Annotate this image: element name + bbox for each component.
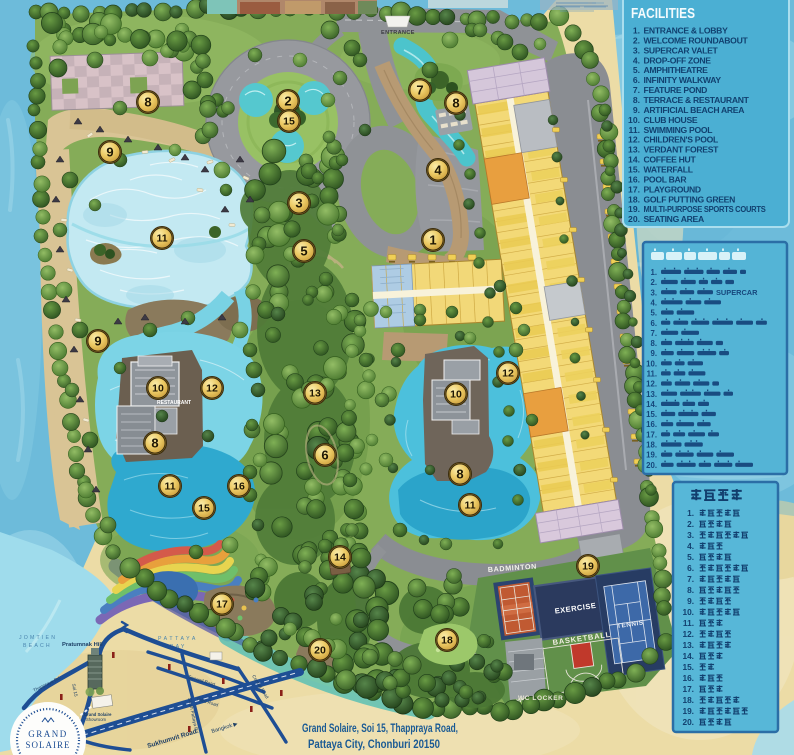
svg-text:8: 8	[144, 95, 151, 110]
svg-text:6.: 6.	[633, 75, 640, 85]
svg-text:Pattaya City, Chonburi 20150: Pattaya City, Chonburi 20150	[308, 737, 440, 751]
svg-text:1.: 1.	[650, 268, 657, 277]
svg-text:1: 1	[429, 233, 436, 248]
svg-text:7: 7	[416, 83, 423, 98]
svg-text:11: 11	[464, 500, 475, 512]
svg-text:10.: 10.	[628, 115, 640, 125]
svg-text:CHILDREN'S POOL: CHILDREN'S POOL	[644, 135, 718, 145]
svg-text:9.: 9.	[650, 349, 657, 358]
svg-text:7.: 7.	[650, 329, 657, 338]
svg-text:COFFEE HUT: COFFEE HUT	[644, 155, 697, 165]
svg-text:11: 11	[164, 481, 175, 493]
svg-text:16.: 16.	[628, 174, 640, 184]
svg-text:PLAYGROUND: PLAYGROUND	[644, 184, 701, 194]
svg-text:8.: 8.	[687, 585, 694, 595]
svg-text:16.: 16.	[646, 420, 657, 429]
svg-text:8: 8	[452, 96, 459, 111]
svg-text:2: 2	[284, 94, 291, 109]
svg-text:12: 12	[502, 368, 514, 380]
svg-text:CLUB HOUSE: CLUB HOUSE	[644, 115, 698, 125]
svg-text:4.: 4.	[650, 298, 657, 307]
svg-text:16.: 16.	[682, 673, 694, 683]
svg-text:2.: 2.	[687, 519, 694, 529]
svg-text:11.: 11.	[647, 370, 657, 379]
svg-text:20.: 20.	[628, 214, 640, 224]
svg-text:SEATING AREA: SEATING AREA	[644, 214, 704, 224]
svg-text:8: 8	[151, 436, 158, 451]
svg-text:11.: 11.	[683, 618, 694, 628]
svg-text:13.: 13.	[646, 390, 657, 399]
svg-text:9: 9	[94, 334, 101, 349]
svg-text:10.: 10.	[682, 607, 694, 617]
svg-text:11: 11	[156, 233, 167, 245]
svg-text:6.: 6.	[650, 319, 657, 328]
svg-text:18.: 18.	[628, 194, 640, 204]
svg-text:9.: 9.	[687, 596, 694, 606]
svg-text:ENTRANCE & LOBBY: ENTRANCE & LOBBY	[644, 26, 729, 36]
svg-text:7.: 7.	[633, 85, 640, 95]
svg-text:WC LOCKER: WC LOCKER	[518, 695, 563, 702]
svg-text:3.: 3.	[633, 45, 640, 55]
svg-text:1.: 1.	[687, 508, 694, 518]
svg-text:4.: 4.	[633, 55, 640, 65]
svg-text:5: 5	[300, 244, 307, 259]
svg-text:12: 12	[206, 383, 218, 395]
svg-text:15: 15	[198, 503, 210, 515]
svg-text:SUPERCAR: SUPERCAR	[716, 288, 758, 297]
svg-text:GRAND: GRAND	[28, 729, 68, 739]
svg-text:MULTI-PURPOSE SPORTS COURTS: MULTI-PURPOSE SPORTS COURTS	[644, 204, 766, 214]
svg-text:12.: 12.	[682, 629, 694, 639]
svg-text:19.: 19.	[628, 204, 640, 214]
svg-text:13.: 13.	[628, 145, 640, 155]
svg-text:10: 10	[152, 383, 164, 395]
svg-text:5.: 5.	[633, 65, 640, 75]
svg-text:20.: 20.	[646, 461, 657, 470]
svg-text:17.: 17.	[646, 430, 657, 439]
svg-text:7.: 7.	[687, 574, 694, 584]
svg-text:13.: 13.	[682, 640, 694, 650]
svg-text:VERDANT FOREST: VERDANT FOREST	[644, 145, 720, 155]
svg-text:18: 18	[441, 635, 453, 647]
svg-text:WATERFALL: WATERFALL	[644, 165, 693, 175]
svg-text:PATTAYA: PATTAYA	[158, 636, 198, 642]
svg-text:18.: 18.	[646, 441, 657, 450]
svg-text:FEATURE POND: FEATURE POND	[644, 85, 708, 95]
svg-text:Showroom: Showroom	[86, 717, 107, 722]
svg-text:4.: 4.	[687, 541, 694, 551]
svg-text:POOL BAR: POOL BAR	[644, 174, 688, 184]
svg-text:19.: 19.	[682, 706, 694, 716]
svg-text:20: 20	[314, 645, 326, 657]
svg-text:TERRACE & RESTAURANT: TERRACE & RESTAURANT	[644, 95, 750, 105]
svg-text:GOLF PUTTING GREEN: GOLF PUTTING GREEN	[644, 194, 736, 204]
svg-text:4: 4	[434, 163, 442, 178]
svg-text:8: 8	[456, 467, 463, 482]
svg-text:DROP-OFF ZONE: DROP-OFF ZONE	[644, 55, 712, 65]
svg-text:9: 9	[106, 145, 113, 160]
svg-text:18.: 18.	[682, 695, 694, 705]
svg-text:12.: 12.	[628, 135, 640, 145]
svg-text:15.: 15.	[628, 165, 640, 175]
svg-text:6: 6	[321, 448, 328, 463]
svg-text:2.: 2.	[650, 278, 657, 287]
svg-text:AMPHITHEATRE: AMPHITHEATRE	[644, 65, 709, 75]
svg-text:13: 13	[309, 388, 321, 400]
svg-text:3: 3	[295, 196, 302, 211]
svg-text:JOMTIEN: JOMTIEN	[19, 635, 57, 641]
svg-text:10: 10	[450, 389, 462, 401]
svg-text:SUPERCAR VALET: SUPERCAR VALET	[644, 45, 719, 55]
svg-text:16: 16	[233, 481, 245, 493]
svg-text:ARTIFICIAL BEACH AREA: ARTIFICIAL BEACH AREA	[644, 105, 745, 115]
svg-text:14.: 14.	[628, 155, 640, 165]
svg-text:SWIMMING POOL: SWIMMING POOL	[644, 125, 713, 135]
svg-text:5.: 5.	[687, 552, 694, 562]
svg-text:SOLAIRE: SOLAIRE	[26, 740, 71, 750]
svg-text:12.: 12.	[646, 380, 657, 389]
svg-text:19: 19	[582, 561, 594, 573]
svg-text:17.: 17.	[628, 184, 640, 194]
svg-text:INFINITY WALKWAY: INFINITY WALKWAY	[644, 75, 722, 85]
svg-text:15.: 15.	[682, 662, 694, 672]
svg-text:3.: 3.	[687, 530, 694, 540]
svg-text:9.: 9.	[633, 105, 640, 115]
svg-text:Grand Solaire, Soi 15, Thappra: Grand Solaire, Soi 15, Thappraya Road,	[302, 721, 458, 735]
svg-text:FACILITIES: FACILITIES	[631, 5, 695, 22]
svg-text:ENTRANCE: ENTRANCE	[381, 30, 415, 36]
svg-text:BEACH: BEACH	[23, 643, 52, 649]
svg-text:19.: 19.	[646, 451, 657, 460]
svg-text:17: 17	[216, 599, 228, 611]
svg-text:20.: 20.	[682, 717, 694, 727]
svg-text:17.: 17.	[682, 684, 694, 694]
svg-text:5.: 5.	[650, 309, 657, 318]
svg-text:Pratumnak Hill: Pratumnak Hill	[62, 642, 103, 648]
svg-text:8.: 8.	[650, 339, 657, 348]
svg-text:11.: 11.	[629, 125, 640, 135]
svg-text:14: 14	[334, 552, 346, 564]
svg-text:10.: 10.	[646, 359, 657, 368]
svg-text:6.: 6.	[687, 563, 694, 573]
svg-text:14.: 14.	[646, 400, 657, 409]
svg-text:1.: 1.	[633, 26, 640, 36]
svg-text:15.: 15.	[646, 410, 657, 419]
svg-text:15: 15	[283, 116, 295, 128]
svg-text:14.: 14.	[682, 651, 694, 661]
svg-text:2.: 2.	[633, 35, 640, 45]
svg-text:8.: 8.	[633, 95, 640, 105]
svg-text:WELCOME ROUNDABOUT: WELCOME ROUNDABOUT	[644, 35, 749, 45]
svg-text:3.: 3.	[650, 288, 657, 297]
svg-text:RESTAURANT: RESTAURANT	[157, 400, 191, 406]
